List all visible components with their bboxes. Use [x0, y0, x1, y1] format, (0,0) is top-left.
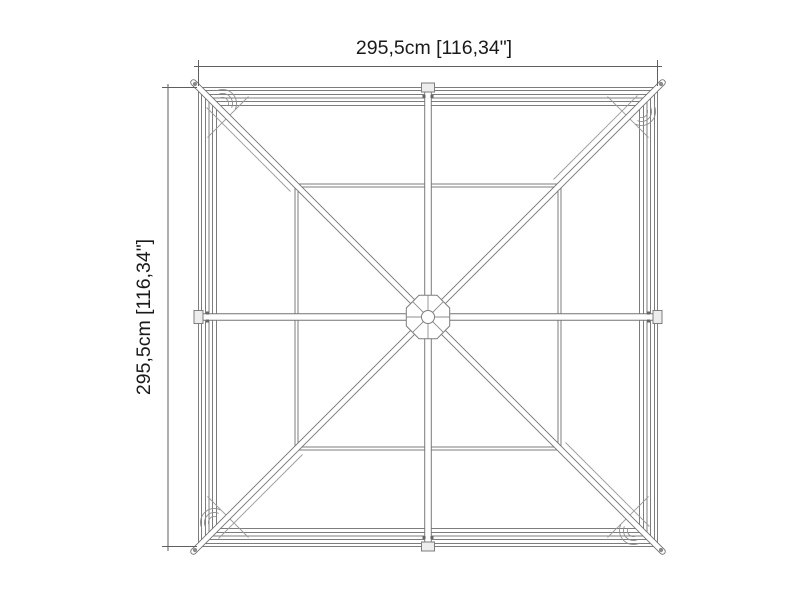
corner-unit-bottom-right — [428, 317, 663, 552]
hub-center-circle — [422, 311, 435, 324]
technical-drawing-page: 295,5cm [116,34"] 295,5cm [116,34"] — [0, 0, 800, 600]
width-dimension-label: 295,5cm [116,34"] — [356, 37, 512, 59]
drawing-canvas: 295,5cm [116,34"] 295,5cm [116,34"] — [0, 0, 800, 600]
height-dimension-label: 295,5cm [116,34"] — [133, 239, 155, 395]
corner-unit-top-left — [193, 82, 428, 317]
corner-unit-top-right — [428, 82, 663, 317]
center-hub — [406, 295, 449, 338]
corner-unit-bottom-left — [193, 317, 428, 552]
